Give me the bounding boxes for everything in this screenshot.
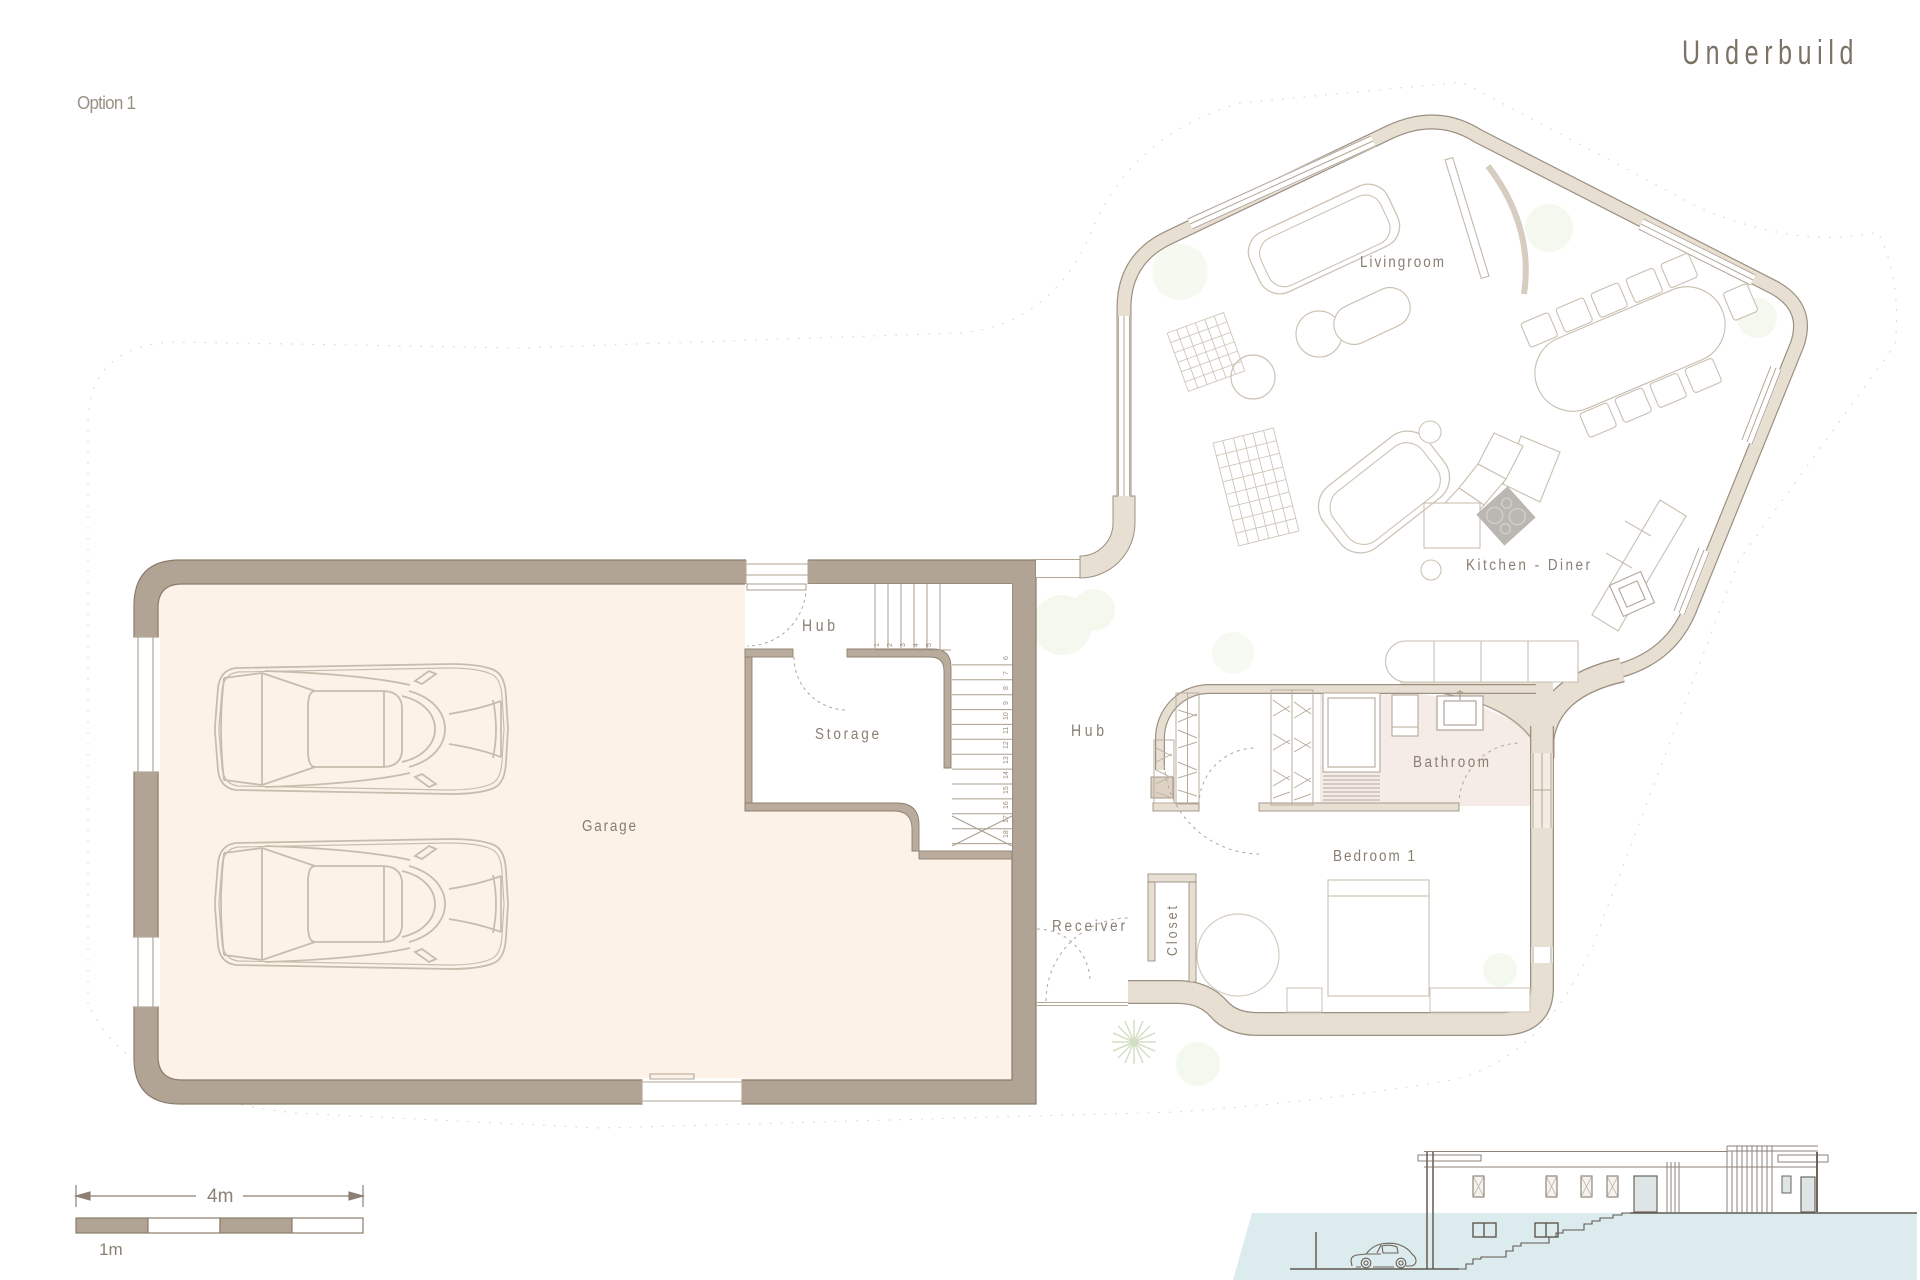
svg-text:9: 9: [1003, 701, 1010, 705]
svg-text:13: 13: [1003, 756, 1010, 764]
svg-text:1m: 1m: [99, 1240, 123, 1259]
svg-text:10: 10: [1003, 712, 1010, 720]
svg-text:Closet: Closet: [1164, 903, 1180, 956]
svg-text:16: 16: [1003, 801, 1010, 809]
svg-text:Kitchen - Diner: Kitchen - Diner: [1466, 557, 1593, 574]
svg-text:Storage: Storage: [815, 726, 882, 743]
svg-text:1: 1: [874, 643, 881, 647]
svg-text:14: 14: [1003, 771, 1010, 779]
svg-text:Bedroom 1: Bedroom 1: [1333, 848, 1418, 865]
svg-text:Option 1: Option 1: [77, 92, 136, 113]
svg-text:Hub: Hub: [802, 617, 838, 635]
svg-text:Underbuild: Underbuild: [1682, 34, 1856, 72]
svg-text:Bathroom: Bathroom: [1413, 754, 1492, 771]
svg-text:17: 17: [1003, 815, 1010, 823]
svg-text:Hub: Hub: [1071, 722, 1107, 740]
svg-text:5: 5: [926, 643, 933, 647]
svg-text:2: 2: [887, 643, 894, 647]
svg-text:4m: 4m: [207, 1186, 233, 1207]
svg-text:11: 11: [1003, 727, 1010, 734]
svg-text:6: 6: [1003, 656, 1010, 660]
svg-text:18: 18: [1003, 830, 1010, 838]
svg-text:15: 15: [1003, 786, 1010, 794]
svg-text:Livingroom: Livingroom: [1360, 254, 1447, 271]
svg-text:12: 12: [1003, 741, 1010, 749]
svg-text:3: 3: [900, 643, 907, 647]
svg-text:4: 4: [913, 643, 920, 647]
svg-text:8: 8: [1003, 686, 1010, 690]
svg-text:Receiver: Receiver: [1052, 918, 1128, 935]
svg-text:Garage: Garage: [582, 818, 639, 835]
svg-text:7: 7: [1003, 671, 1010, 675]
